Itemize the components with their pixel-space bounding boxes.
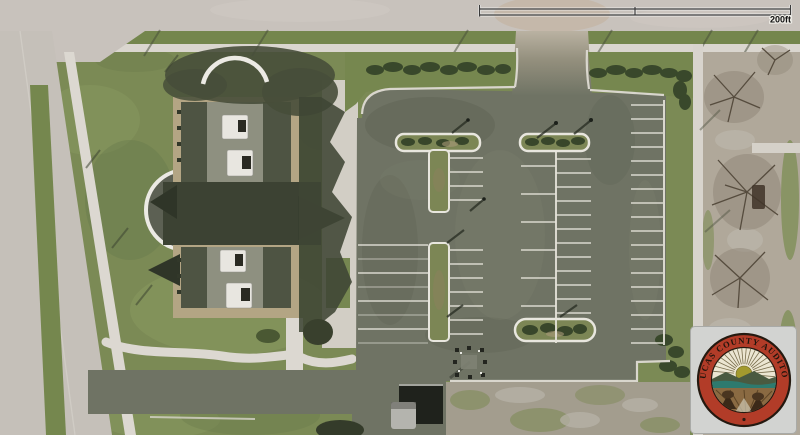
entrance-drive (512, 31, 592, 96)
seal-bottom-dot (742, 418, 745, 421)
center-roof (163, 182, 321, 245)
se-dirt-area (446, 382, 690, 435)
east-cross-path (752, 143, 800, 153)
aerial-map-viewport[interactable]: 200ft (0, 0, 800, 435)
auditor-logo-card: LUCAS COUNTY AUDITOR (690, 326, 797, 434)
scale-label: 200ft (770, 15, 791, 25)
auditor-seal: LUCAS COUNTY AUDITOR (694, 330, 794, 430)
aerial-photo: 200ft (0, 0, 800, 435)
